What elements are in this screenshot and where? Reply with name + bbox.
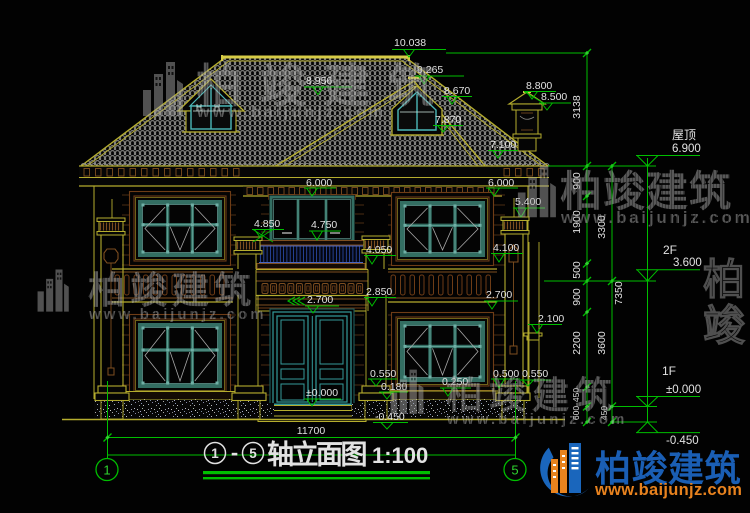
svg-text:3138: 3138 xyxy=(571,95,583,119)
svg-text:柏竣建筑: 柏竣建筑 xyxy=(88,269,256,311)
svg-text:6.900: 6.900 xyxy=(672,143,701,155)
svg-text:8.500: 8.500 xyxy=(541,91,567,103)
svg-text:轴立面图: 轴立面图 xyxy=(267,439,366,470)
svg-text:±0.000: ±0.000 xyxy=(306,387,338,399)
svg-text:www.baijunjz.com: www.baijunjz.com xyxy=(196,104,386,121)
svg-text:柏竣建筑: 柏竣建筑 xyxy=(446,374,618,416)
svg-text:柏: 柏 xyxy=(703,256,745,303)
svg-text:4.050: 4.050 xyxy=(366,244,392,256)
svg-text:7.100: 7.100 xyxy=(490,139,516,151)
svg-text:3600: 3600 xyxy=(596,331,608,355)
svg-text:2.850: 2.850 xyxy=(366,286,392,298)
svg-text:7.870: 7.870 xyxy=(435,114,461,126)
svg-text:11700: 11700 xyxy=(297,425,326,437)
svg-text:1F: 1F xyxy=(662,364,676,378)
svg-text:2.700: 2.700 xyxy=(486,289,512,301)
svg-text:1:100: 1:100 xyxy=(372,443,428,468)
svg-text:2.700: 2.700 xyxy=(307,294,333,306)
svg-text:5: 5 xyxy=(511,463,518,478)
svg-text:www.baijunjz.com: www.baijunjz.com xyxy=(560,208,750,227)
svg-text:5: 5 xyxy=(249,446,257,461)
svg-text:2200: 2200 xyxy=(571,331,583,355)
svg-text:4.100: 4.100 xyxy=(493,242,519,254)
svg-text:1: 1 xyxy=(103,463,110,478)
svg-text:www.baijunjz.com: www.baijunjz.com xyxy=(88,306,266,323)
svg-text:6.000: 6.000 xyxy=(306,177,332,189)
svg-text:4.850: 4.850 xyxy=(254,218,280,230)
svg-text:±0.000: ±0.000 xyxy=(666,384,701,396)
svg-text:1: 1 xyxy=(211,446,219,461)
svg-text:0.550: 0.550 xyxy=(370,368,396,380)
svg-text:-0.450: -0.450 xyxy=(666,435,699,447)
svg-text:6.000: 6.000 xyxy=(488,177,514,189)
svg-text:屋顶: 屋顶 xyxy=(672,128,696,142)
svg-text:-: - xyxy=(231,440,238,465)
svg-text:2F: 2F xyxy=(663,243,677,257)
svg-text:7350: 7350 xyxy=(613,281,625,305)
svg-text:www.baijunjz.com: www.baijunjz.com xyxy=(446,411,628,428)
svg-text:900: 900 xyxy=(571,288,583,306)
svg-text:10.038: 10.038 xyxy=(394,37,426,49)
svg-text:2.100: 2.100 xyxy=(538,313,564,325)
svg-text:3.600: 3.600 xyxy=(673,257,702,269)
svg-text:4.750: 4.750 xyxy=(311,219,337,231)
svg-text:500: 500 xyxy=(571,261,583,279)
svg-text:www.baijunjz.com: www.baijunjz.com xyxy=(594,481,742,499)
svg-text:竣: 竣 xyxy=(703,302,745,349)
